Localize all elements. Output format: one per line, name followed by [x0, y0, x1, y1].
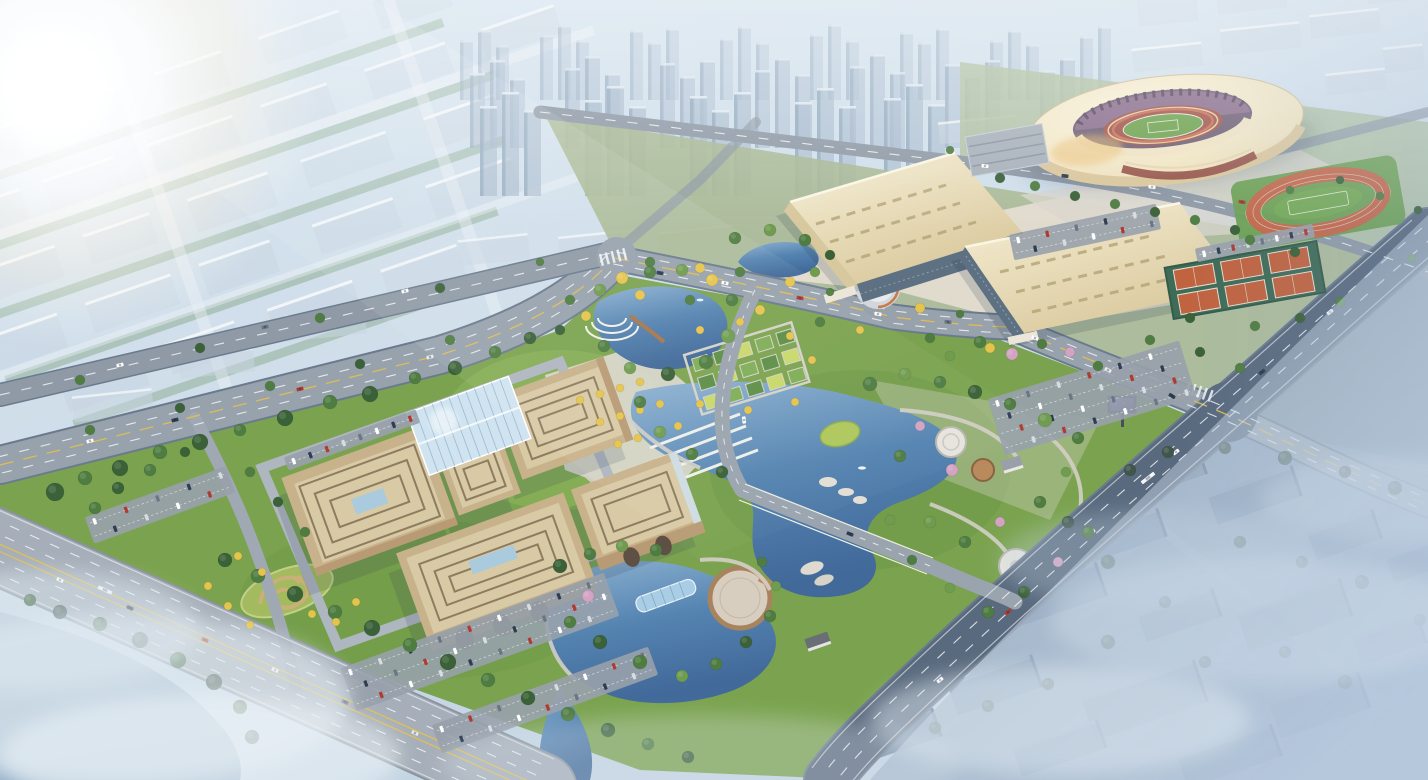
- vehicle: [944, 320, 951, 324]
- aerial-render: Aerial architectural rendering of a civi…: [0, 0, 1428, 780]
- scene-svg: Aerial architectural rendering of a civi…: [0, 0, 1428, 780]
- wood-deck-circle: [972, 459, 994, 481]
